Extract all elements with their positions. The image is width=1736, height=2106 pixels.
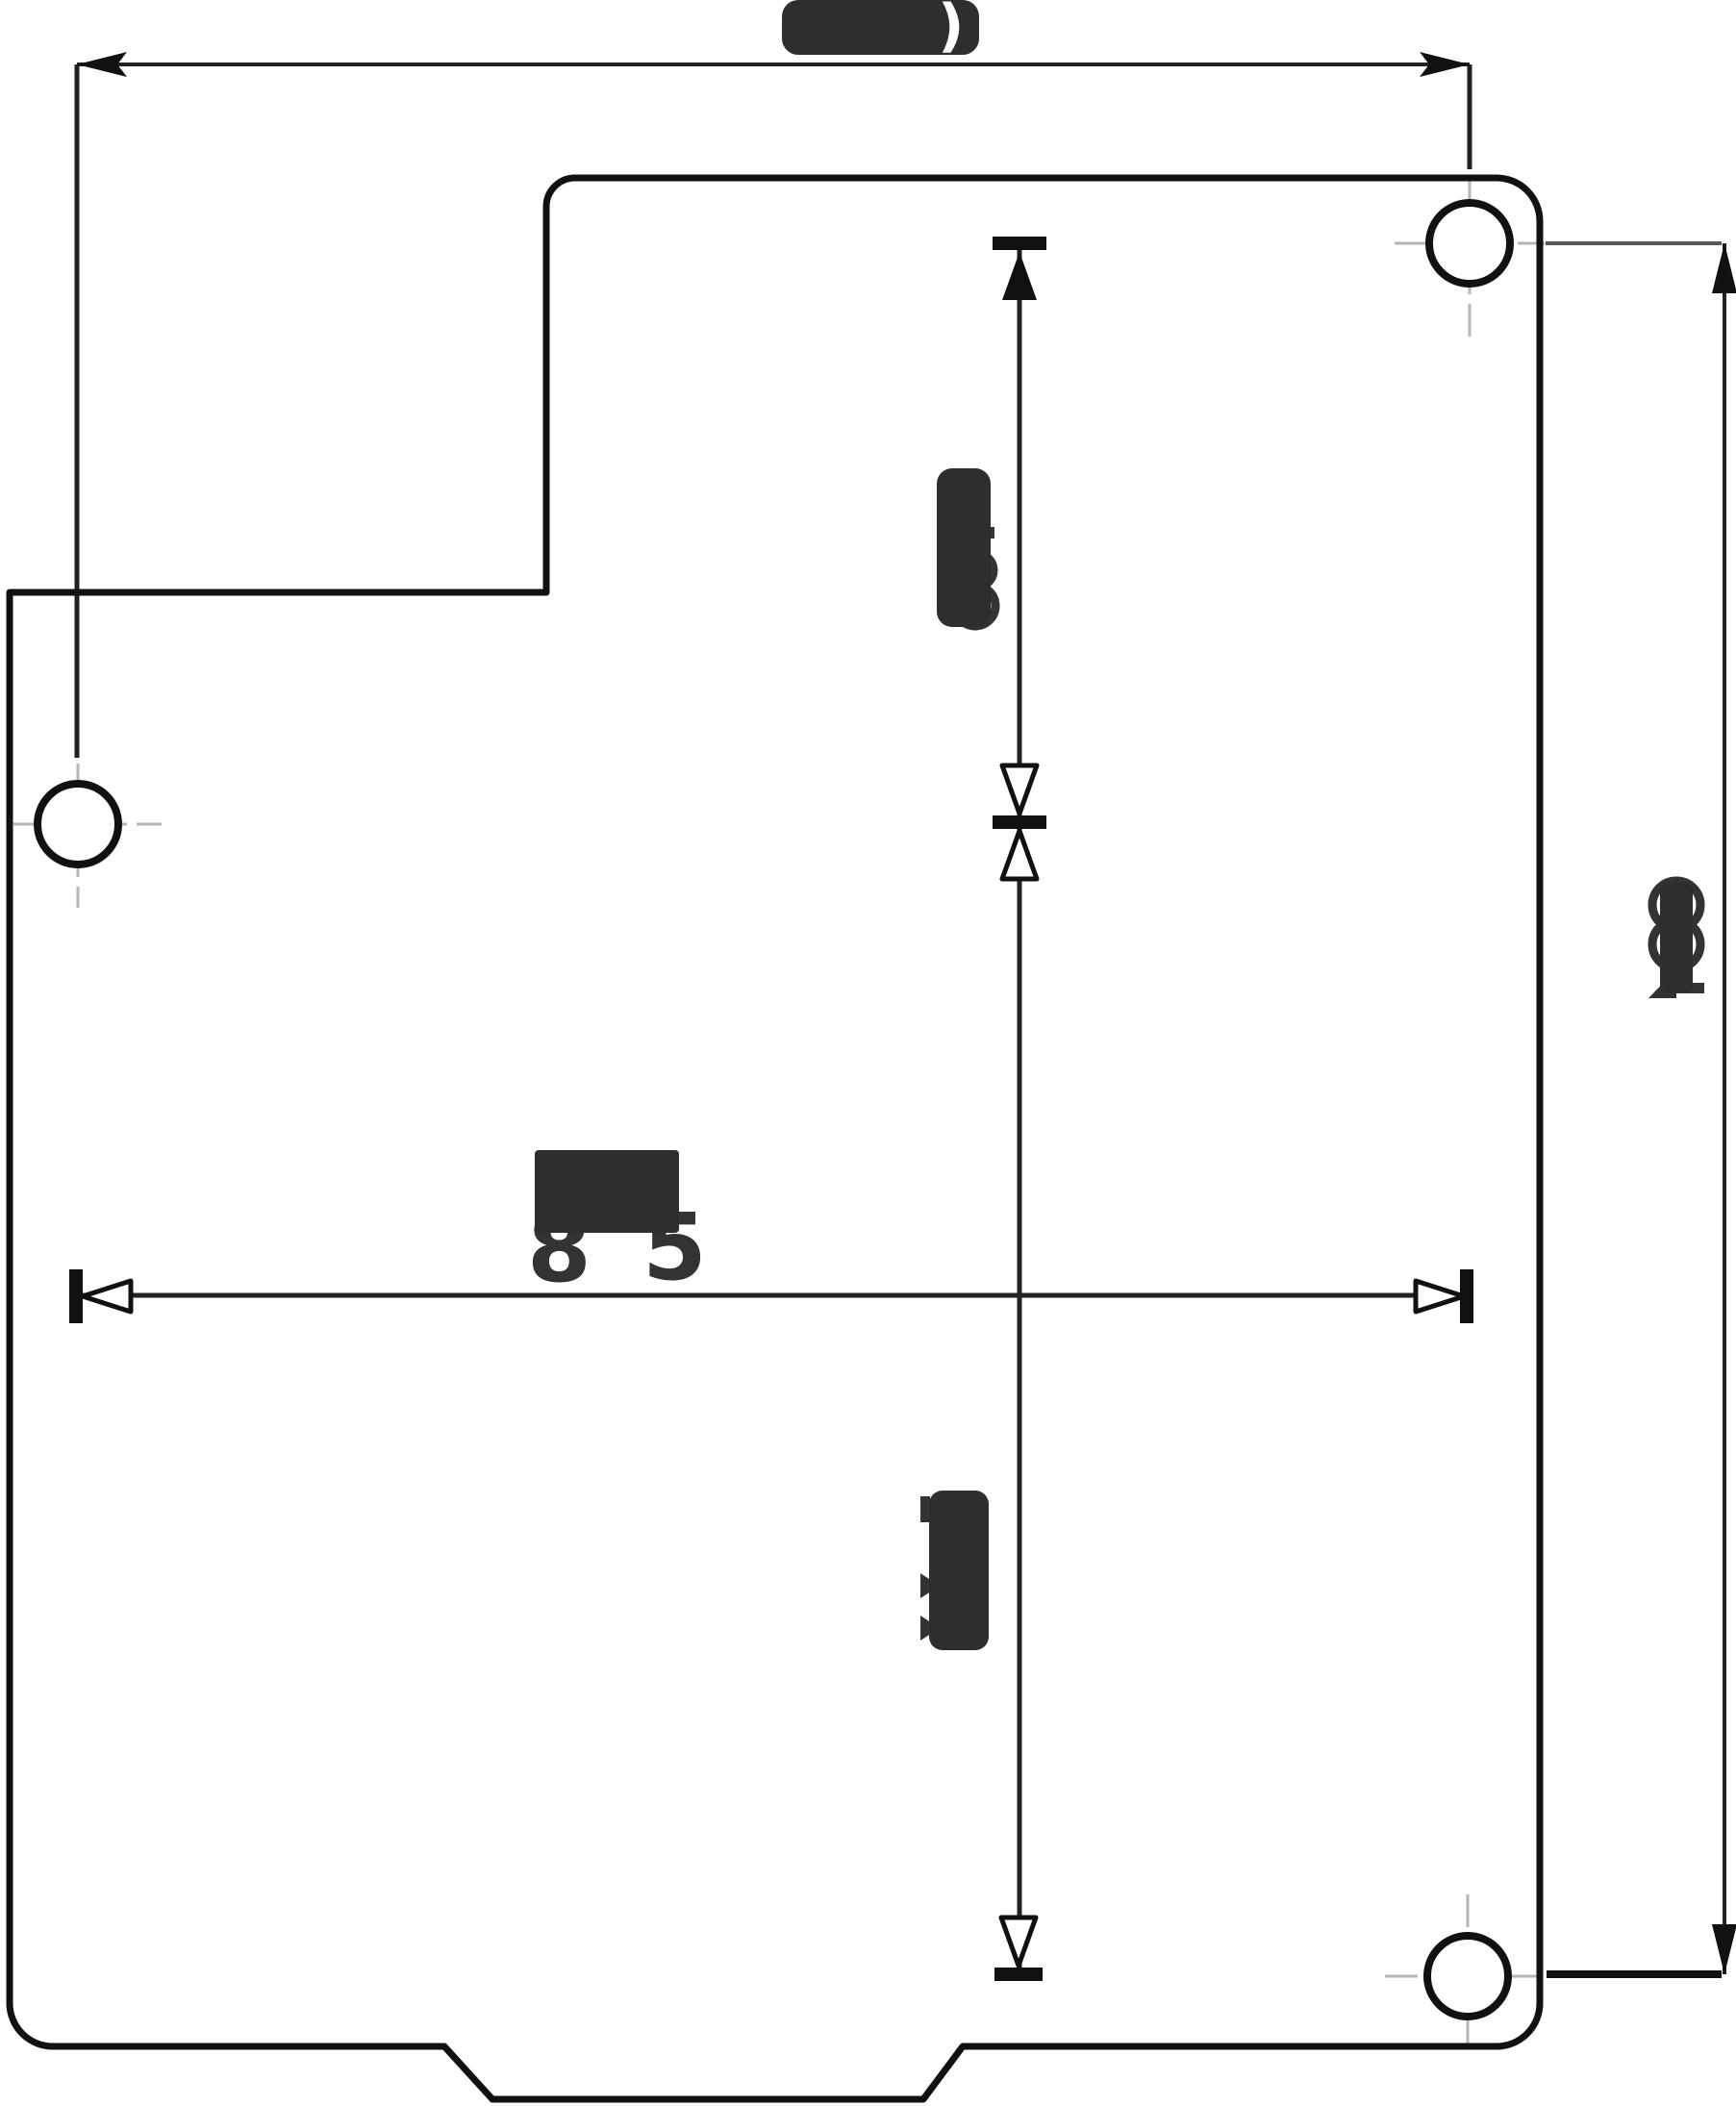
arrow-center-width-left: [83, 1281, 131, 1312]
centerlines: [13, 181, 1545, 2044]
drawing-canvas: ) 8 5: [0, 0, 1736, 2106]
tick-lower-height-bottom: [994, 1968, 1043, 1981]
label-upper-center-height: [937, 468, 995, 627]
arrow-right-height-bottom: [1712, 1924, 1736, 1974]
plate-outline: [10, 178, 1540, 2099]
hole-bottom-right: [1427, 1936, 1508, 2017]
label-upper-height-redaction: [937, 468, 991, 627]
label-top-width: ): [782, 0, 979, 60]
hole-top-right: [1429, 203, 1510, 284]
label-center-width: 8 5: [527, 1150, 707, 1303]
dimension-terminators: [69, 52, 1736, 1981]
arrow-lower-height-bottom: [1001, 1918, 1036, 1966]
arrow-right-height-top: [1712, 243, 1736, 293]
extension-lines: [77, 64, 1722, 1974]
label-lower-height-redaction: [929, 1491, 989, 1650]
dimension-lines: [77, 64, 1724, 1974]
label-lower-center-height: [920, 1491, 989, 1650]
arrow-lower-height-top: [1002, 831, 1037, 879]
arrow-upper-height-top: [1002, 252, 1037, 300]
label-top-width-fragment: ): [938, 0, 964, 60]
tick-height-junction: [993, 815, 1046, 829]
label-center-width-redaction: [535, 1150, 679, 1233]
arrow-center-width-right: [1416, 1281, 1464, 1312]
tick-upper-height-top: [993, 237, 1046, 250]
part-drawing: ) 8 5: [0, 0, 1736, 2106]
hole-left: [38, 784, 118, 865]
label-right-height: [1648, 881, 1704, 998]
arrow-upper-height-bottom: [1002, 765, 1037, 814]
label-right-height-redaction: [1660, 883, 1693, 992]
holes: [38, 203, 1510, 2017]
label-lower-height-fragment-bar: [920, 1496, 930, 1522]
